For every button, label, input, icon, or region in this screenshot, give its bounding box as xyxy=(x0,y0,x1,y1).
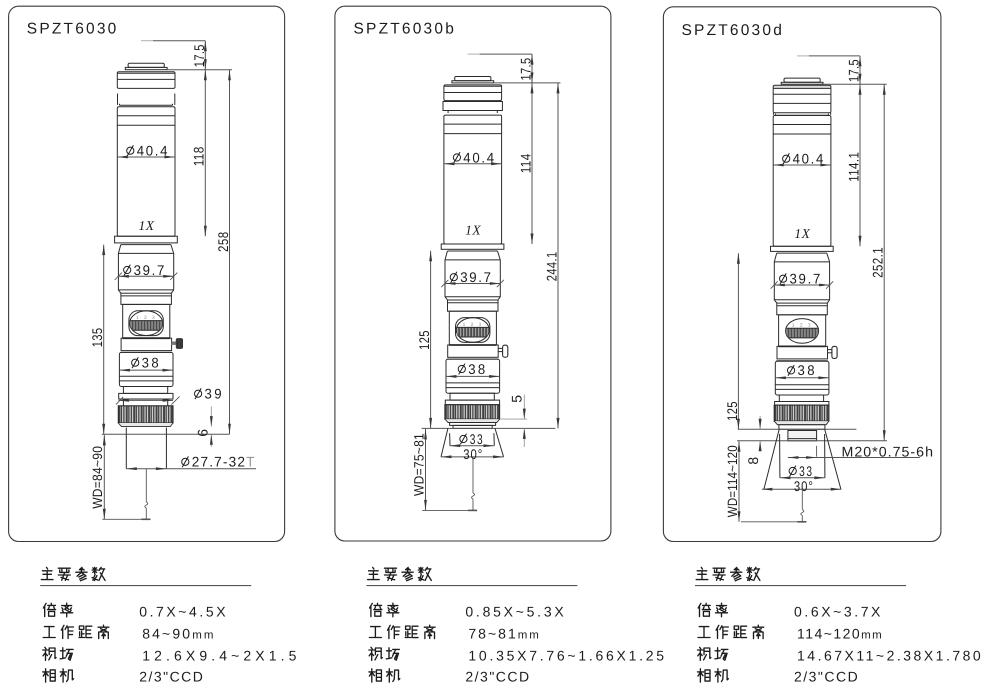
svg-text:WD=75~81: WD=75~81 xyxy=(411,433,426,496)
svg-text:39.7: 39.7 xyxy=(134,262,167,278)
svg-text:1X: 1X xyxy=(794,226,810,241)
svg-text:30°: 30° xyxy=(794,478,814,494)
svg-text:1 2 3: 1 2 3 xyxy=(792,323,813,329)
svg-text:2/3"CCD: 2/3"CCD xyxy=(465,669,531,685)
svg-text:6: 6 xyxy=(194,428,210,437)
svg-text:27.7-32T: 27.7-32T xyxy=(192,454,256,470)
svg-text:40.4: 40.4 xyxy=(137,143,170,159)
svg-text:2/3"CCD: 2/3"CCD xyxy=(139,669,205,685)
svg-text:8: 8 xyxy=(745,456,761,465)
svg-text:114.1: 114.1 xyxy=(845,152,861,182)
svg-text:84~90mm: 84~90mm xyxy=(142,626,216,642)
svg-text:5: 5 xyxy=(508,394,524,403)
svg-text:114~120mm: 114~120mm xyxy=(797,626,884,642)
svg-text:10.35X7.76~1.66X1.25: 10.35X7.76~1.66X1.25 xyxy=(468,648,666,664)
svg-text:38: 38 xyxy=(142,355,162,371)
svg-text:12.6X9.4~2X1.5: 12.6X9.4~2X1.5 xyxy=(142,648,299,664)
svg-text:17.5: 17.5 xyxy=(191,44,207,67)
svg-text:14.67X11~2.38X1.780: 14.67X11~2.38X1.780 xyxy=(797,648,983,664)
svg-text:135: 135 xyxy=(89,328,105,348)
svg-text:114: 114 xyxy=(517,153,533,173)
svg-text:1 2 3: 1 2 3 xyxy=(463,322,484,328)
svg-text:0.6X~3.7X: 0.6X~3.7X xyxy=(794,604,883,620)
svg-text:38: 38 xyxy=(798,362,818,378)
svg-text:39.7: 39.7 xyxy=(460,269,493,285)
svg-text:SPZT6030: SPZT6030 xyxy=(27,21,119,38)
svg-text:39: 39 xyxy=(205,386,225,402)
svg-text:125: 125 xyxy=(724,401,740,421)
svg-text:40.4: 40.4 xyxy=(463,149,496,165)
svg-text:SPZT6030d: SPZT6030d xyxy=(682,22,785,39)
svg-text:258: 258 xyxy=(215,231,231,252)
svg-text:252.1: 252.1 xyxy=(870,247,886,278)
svg-text:33: 33 xyxy=(799,463,814,479)
svg-text:SPZT6030b: SPZT6030b xyxy=(354,21,457,38)
svg-text:0.85X~5.3X: 0.85X~5.3X xyxy=(465,604,566,620)
svg-text:38: 38 xyxy=(468,361,488,377)
svg-text:M20*0.75-6h: M20*0.75-6h xyxy=(842,443,935,459)
svg-text:2/3"CCD: 2/3"CCD xyxy=(794,669,860,685)
svg-text:118: 118 xyxy=(191,146,207,166)
svg-text:40.4: 40.4 xyxy=(793,151,826,167)
svg-text:33: 33 xyxy=(470,431,485,447)
svg-text:244.1: 244.1 xyxy=(543,251,559,281)
svg-text:125: 125 xyxy=(416,330,432,350)
svg-text:0.7X~4.5X: 0.7X~4.5X xyxy=(139,604,228,620)
svg-text:1 2 3: 1 2 3 xyxy=(136,315,157,321)
svg-text:1X: 1X xyxy=(139,218,155,233)
svg-text:WD=114~120: WD=114~120 xyxy=(725,445,740,517)
svg-text:WD=84~90: WD=84~90 xyxy=(90,446,105,509)
svg-text:39.7: 39.7 xyxy=(790,271,823,287)
svg-text:17.5: 17.5 xyxy=(518,58,534,81)
svg-text:17.5: 17.5 xyxy=(846,59,862,82)
svg-text:1X: 1X xyxy=(465,222,481,237)
svg-text:78~81mm: 78~81mm xyxy=(468,626,541,642)
